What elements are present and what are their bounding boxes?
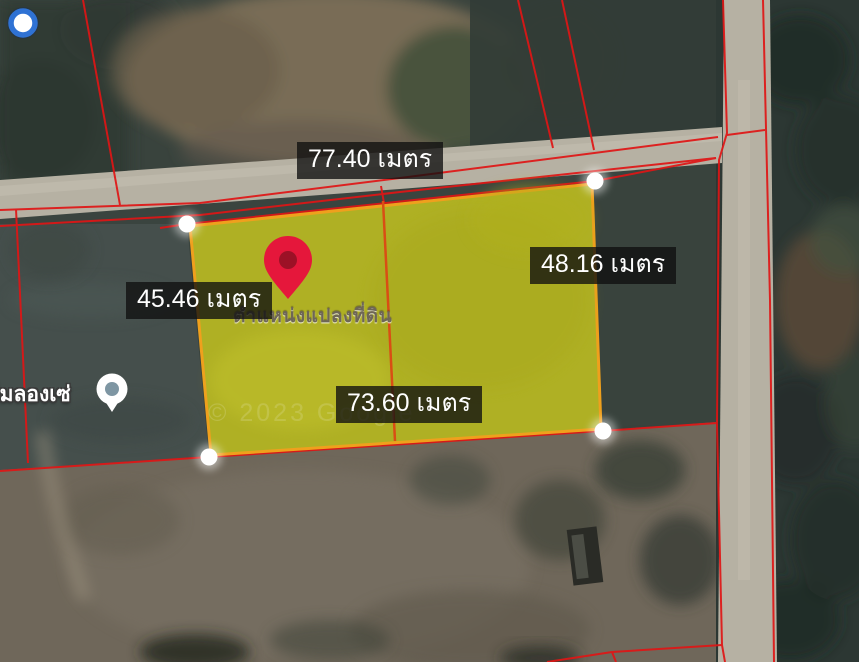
vertex-marker-bottom-right[interactable] bbox=[590, 418, 616, 444]
satellite-map[interactable]: © 2023 Google ตำแหน่งแปลงที่ดิน ดื่มลองเ… bbox=[0, 0, 859, 662]
measurement-label-bottom: 73.60 เมตร bbox=[336, 386, 482, 423]
vertex-marker-top-left[interactable] bbox=[174, 211, 200, 237]
vertex-marker-top-right[interactable] bbox=[582, 168, 608, 194]
blue-dot-icon bbox=[7, 7, 39, 39]
field-middle-left bbox=[0, 212, 209, 472]
satellite-imagery bbox=[0, 0, 859, 662]
measurement-label-top: 77.40 เมตร bbox=[297, 142, 443, 179]
measurement-label-right: 48.16 เมตร bbox=[530, 247, 676, 284]
place-name-label[interactable]: ดื่มลองเซ่ bbox=[0, 378, 71, 411]
vertex-marker-bottom-left[interactable] bbox=[196, 444, 222, 470]
trees-top-right bbox=[470, 0, 722, 150]
measurement-label-left: 45.46 เมตร bbox=[126, 282, 272, 319]
